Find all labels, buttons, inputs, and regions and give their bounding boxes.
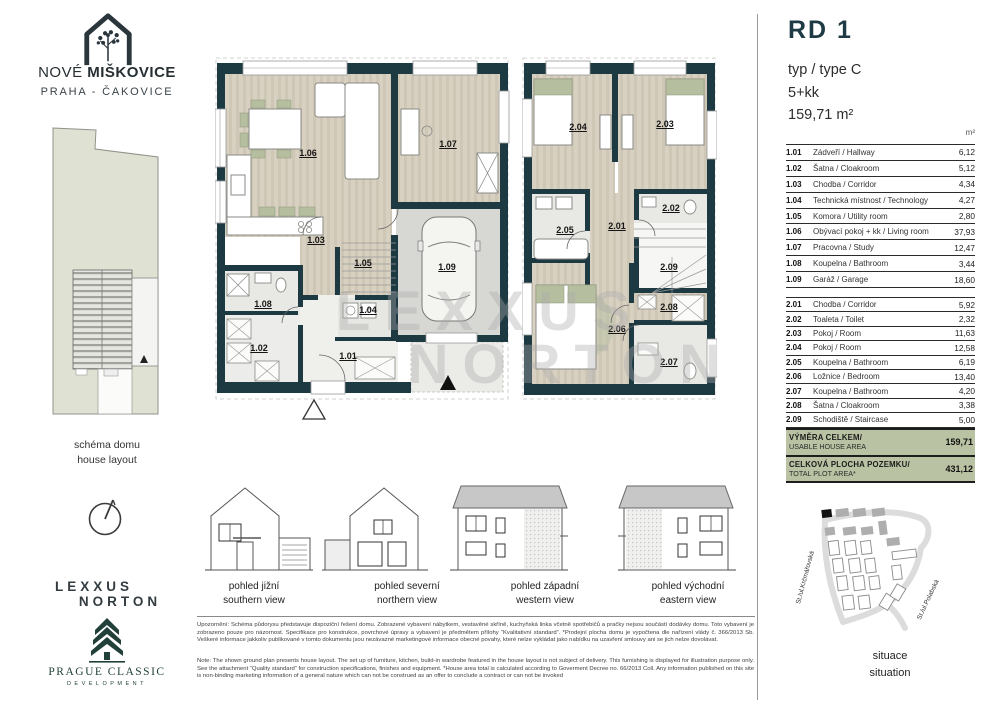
elevation-north — [320, 478, 430, 575]
room-label: 1.06 — [291, 148, 325, 158]
table-row: 2.02 Toaleta / Toilet 2,32 — [786, 312, 975, 326]
room-label: 2.01 — [600, 221, 634, 231]
summary-row-house-area: VÝMĚRA CELKEM/ USABLE HOUSE AREA 159,71 — [786, 430, 975, 457]
table-row: 1.05 Komora / Utility room 2,80 — [786, 209, 975, 225]
project-name: NOVÉ MIŠKOVICE — [0, 64, 214, 81]
table-row: 1.02 Šatna / Cloakroom 5,12 — [786, 161, 975, 177]
table-row: 2.04 Pokoj / Room 12,58 — [786, 341, 975, 355]
elevation-south — [203, 478, 315, 575]
north-compass-icon — [85, 496, 127, 538]
room-table-floor1: 1.01 Zádveří / Hallway 6,12 1.02 Šatna /… — [786, 144, 975, 288]
table-row: 2.09 Schodiště / Staircase 5,00 — [786, 413, 975, 427]
room-label: 2.06 — [600, 324, 634, 334]
note-czech: Upozornění: Schéma půdorysu představuje … — [197, 622, 754, 645]
floorplan-ground-drawing — [215, 57, 510, 432]
house-tree-logo-icon — [79, 11, 137, 67]
table-row: 2.03 Pokoj / Room 11,63 — [786, 327, 975, 341]
room-label: 2.04 — [561, 122, 595, 132]
room-label: 2.05 — [548, 225, 582, 235]
room-label: 1.04 — [351, 305, 385, 315]
room-label: 1.03 — [299, 235, 333, 245]
room-label: 1.02 — [242, 343, 276, 353]
area-column-header: m² — [786, 128, 975, 137]
room-label: 2.07 — [652, 357, 686, 367]
summary-table: VÝMĚRA CELKEM/ USABLE HOUSE AREA 159,71 … — [786, 428, 975, 483]
table-row: 2.01 Chodba / Corridor 5,92 — [786, 298, 975, 312]
room-label: 1.09 — [430, 262, 464, 272]
table-row: 2.05 Koupelna / Bathroom 6,19 — [786, 356, 975, 370]
room-label: 2.02 — [654, 203, 688, 213]
elevation-west — [450, 478, 570, 575]
room-label: 2.09 — [652, 262, 686, 272]
unit-title: RD 1 — [788, 16, 853, 45]
project-location: PRAHA - ČAKOVICE — [0, 86, 214, 98]
table-row: 1.03 Chodba / Corridor 4,34 — [786, 177, 975, 193]
table-row: 1.04 Technická místnost / Technology 4,2… — [786, 193, 975, 209]
table-row: 1.09 Garáž / Garage 18,60 — [786, 272, 975, 288]
developer-name: PRAGUE CLASSIC — [0, 666, 214, 678]
elevation-caption-west: pohled západníwestern view — [483, 580, 607, 608]
room-label: 1.01 — [331, 351, 365, 361]
agency-logo: LEXXUS NORTON — [0, 579, 214, 609]
summary-row-plot-area: CELKOVÁ PLOCHA POZEMKU/ TOTAL PLOT AREA*… — [786, 457, 975, 484]
unit-disposition: 5+kk — [788, 85, 819, 101]
brochure-page: NOVÉ MIŠKOVICE PRAHA - ČAKOVICE schéma d… — [0, 0, 1000, 707]
floorplan-upper: 2.04 2.03 2.01 2.02 2.05 2.09 2.08 2.06 … — [522, 57, 717, 407]
developer-subtitle: DEVELOPMENT — [0, 681, 214, 687]
plot-schema — [36, 122, 162, 420]
note-english: Note: The shown ground plan presents hou… — [197, 658, 754, 681]
room-table-floor2: 2.01 Chodba / Corridor 5,92 2.02 Toaleta… — [786, 297, 975, 428]
elevation-east — [616, 478, 736, 575]
table-row: 2.06 Ložnice / Bedroom 13,40 — [786, 370, 975, 384]
panel-divider — [757, 14, 758, 700]
elevation-caption-east: pohled východníeastern view — [626, 580, 750, 608]
room-label: 2.03 — [648, 119, 682, 129]
elevation-caption-south: pohled jižnísouthern view — [192, 580, 316, 608]
elevation-caption-north: pohled severnínorthern view — [345, 580, 469, 608]
room-label: 1.05 — [346, 258, 380, 268]
floorplan-ground: 1.06 1.07 1.03 1.05 1.08 1.04 1.02 1.01 … — [215, 57, 510, 432]
situation-map — [795, 492, 960, 644]
divider-line — [197, 616, 755, 617]
table-row: 1.08 Koupelna / Bathroom 3,44 — [786, 256, 975, 272]
unit-total-area: 159,71 m² — [788, 107, 853, 123]
table-row: 1.07 Pracovna / Study 12,47 — [786, 240, 975, 256]
schema-caption: schéma domu house layout — [0, 438, 214, 468]
situation-caption: situace situation — [790, 648, 990, 682]
unit-type: typ / type C — [788, 62, 861, 78]
room-label: 2.08 — [652, 302, 686, 312]
table-row: 1.06 Obývací pokoj + kk / Living room 37… — [786, 224, 975, 240]
table-row: 1.01 Zádveří / Hallway 6,12 — [786, 145, 975, 161]
room-label: 1.08 — [246, 299, 280, 309]
room-label: 1.07 — [431, 139, 465, 149]
table-row: 2.08 Šatna / Cloakroom 3,38 — [786, 399, 975, 413]
table-row: 2.07 Koupelna / Bathroom 4,20 — [786, 384, 975, 398]
developer-tree-icon — [89, 618, 125, 664]
